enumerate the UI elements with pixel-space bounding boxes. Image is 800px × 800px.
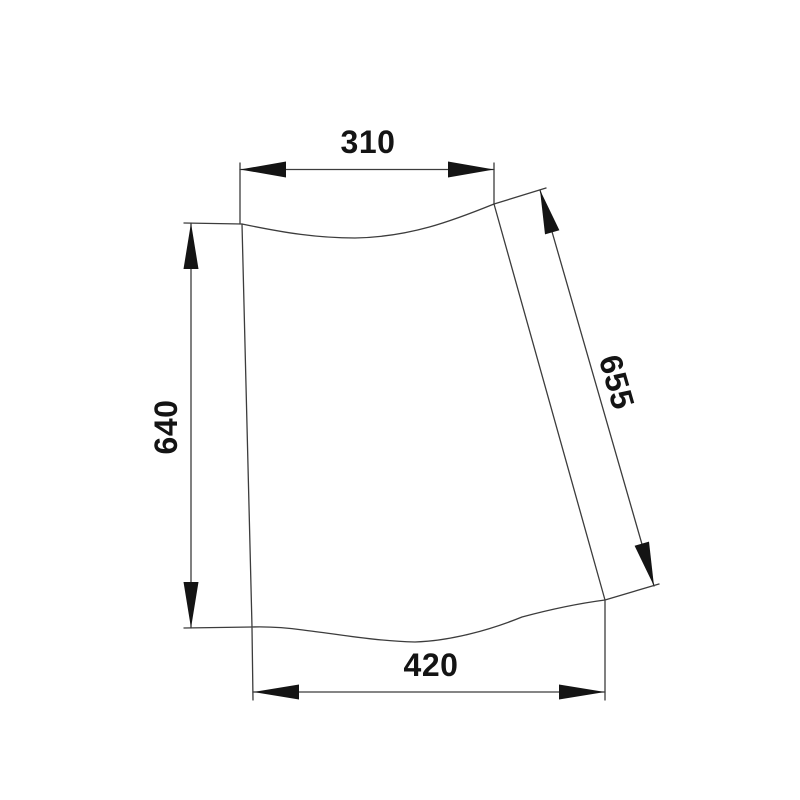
extension-line-left-lower [184, 627, 252, 628]
arrowhead-left-lower-icon [184, 582, 199, 628]
dimension-label-right-edge-length: 655 [592, 351, 642, 414]
arrowhead-bottom-right-icon [559, 685, 605, 700]
panel-outline [242, 204, 605, 642]
technical-drawing-page: 310 640 655 420 [0, 0, 800, 800]
extension-line-bottom-left [252, 628, 253, 700]
arrowhead-bottom-left-icon [253, 685, 299, 700]
dimension-label-top-width: 310 [341, 124, 396, 160]
dimension-label-bottom-width: 420 [404, 647, 459, 683]
dimension-drawing: 310 640 655 420 [0, 0, 800, 800]
arrowhead-right-upper-icon [540, 190, 559, 234]
dimension-label-left-height: 640 [148, 400, 184, 455]
arrowhead-right-lower-icon [635, 542, 654, 586]
arrowhead-left-upper-icon [184, 223, 199, 269]
extension-line-left-upper [184, 223, 242, 224]
extension-line-right-upper [494, 188, 546, 204]
extension-line-right-lower [605, 584, 659, 600]
arrowhead-top-left-icon [240, 162, 286, 178]
arrowhead-top-right-icon [448, 162, 494, 178]
